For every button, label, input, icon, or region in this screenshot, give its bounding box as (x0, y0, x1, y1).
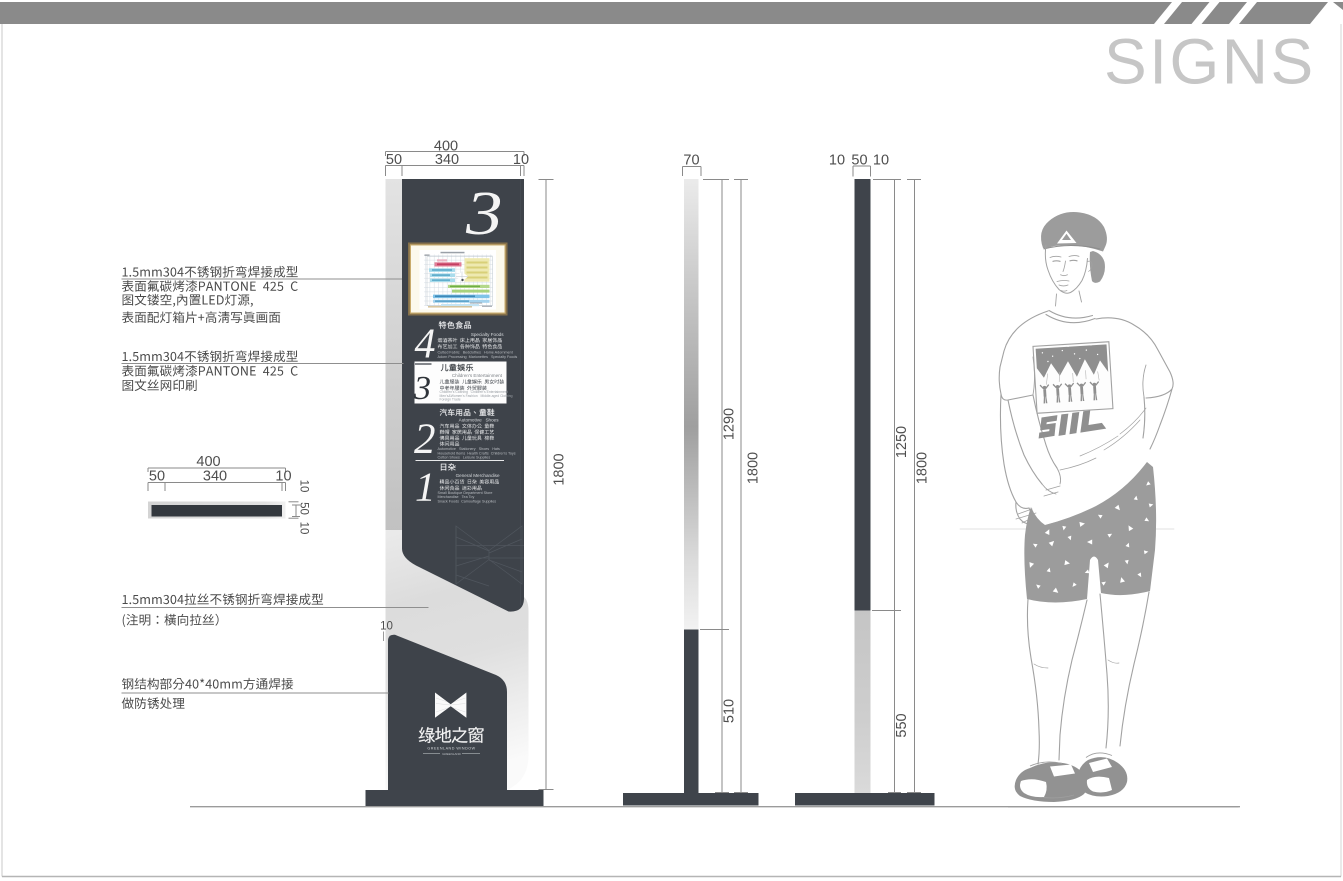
svg-text:Automotive Shoes: Automotive Shoes (459, 418, 500, 423)
svg-text:10: 10 (829, 152, 845, 168)
svg-text:2: 2 (414, 416, 436, 463)
svg-text:Snack Foods Camouflage Suppli: Snack Foods Camouflage Supplies (438, 499, 497, 503)
svg-text:1800: 1800 (746, 452, 762, 484)
svg-text:10: 10 (298, 522, 310, 535)
svg-text:General Merchandise: General Merchandise (456, 473, 500, 478)
svg-text:1800: 1800 (552, 453, 568, 485)
svg-text:GREENLAND: GREENLAND (442, 752, 462, 756)
svg-text:3: 3 (465, 179, 503, 248)
svg-text:Children's Entertainment: Children's Entertainment (452, 373, 503, 378)
svg-text:1: 1 (415, 464, 436, 510)
svg-text:10: 10 (380, 621, 393, 633)
svg-text:GREENLAND WINDOW: GREENLAND WINDOW (427, 746, 475, 750)
svg-text:550: 550 (894, 713, 910, 737)
svg-text:1800: 1800 (915, 452, 931, 484)
svg-text:Cotton Shoes Leisure Supplie: Cotton Shoes Leisure Supplies (438, 456, 491, 460)
svg-text:10: 10 (298, 480, 310, 493)
svg-text:Cutted Fabric Bedclothes H: Cutted Fabric Bedclothes Home Adornment (438, 351, 513, 355)
svg-text:1250: 1250 (894, 426, 910, 458)
svg-text:50: 50 (298, 502, 310, 515)
svg-text:Adorn Processing Marionettes: Adorn Processing Marionettes Specialty F… (438, 355, 518, 359)
svg-text:510: 510 (722, 699, 738, 723)
svg-text:3: 3 (413, 370, 431, 407)
svg-text:1290: 1290 (722, 408, 738, 440)
svg-text:4: 4 (415, 322, 436, 368)
svg-text:SIGNS: SIGNS (1104, 26, 1316, 98)
svg-text:10: 10 (873, 152, 889, 168)
svg-text:Specialty Foods: Specialty Foods (471, 332, 504, 337)
svg-text:Foreign Trade: Foreign Trade (440, 398, 461, 402)
